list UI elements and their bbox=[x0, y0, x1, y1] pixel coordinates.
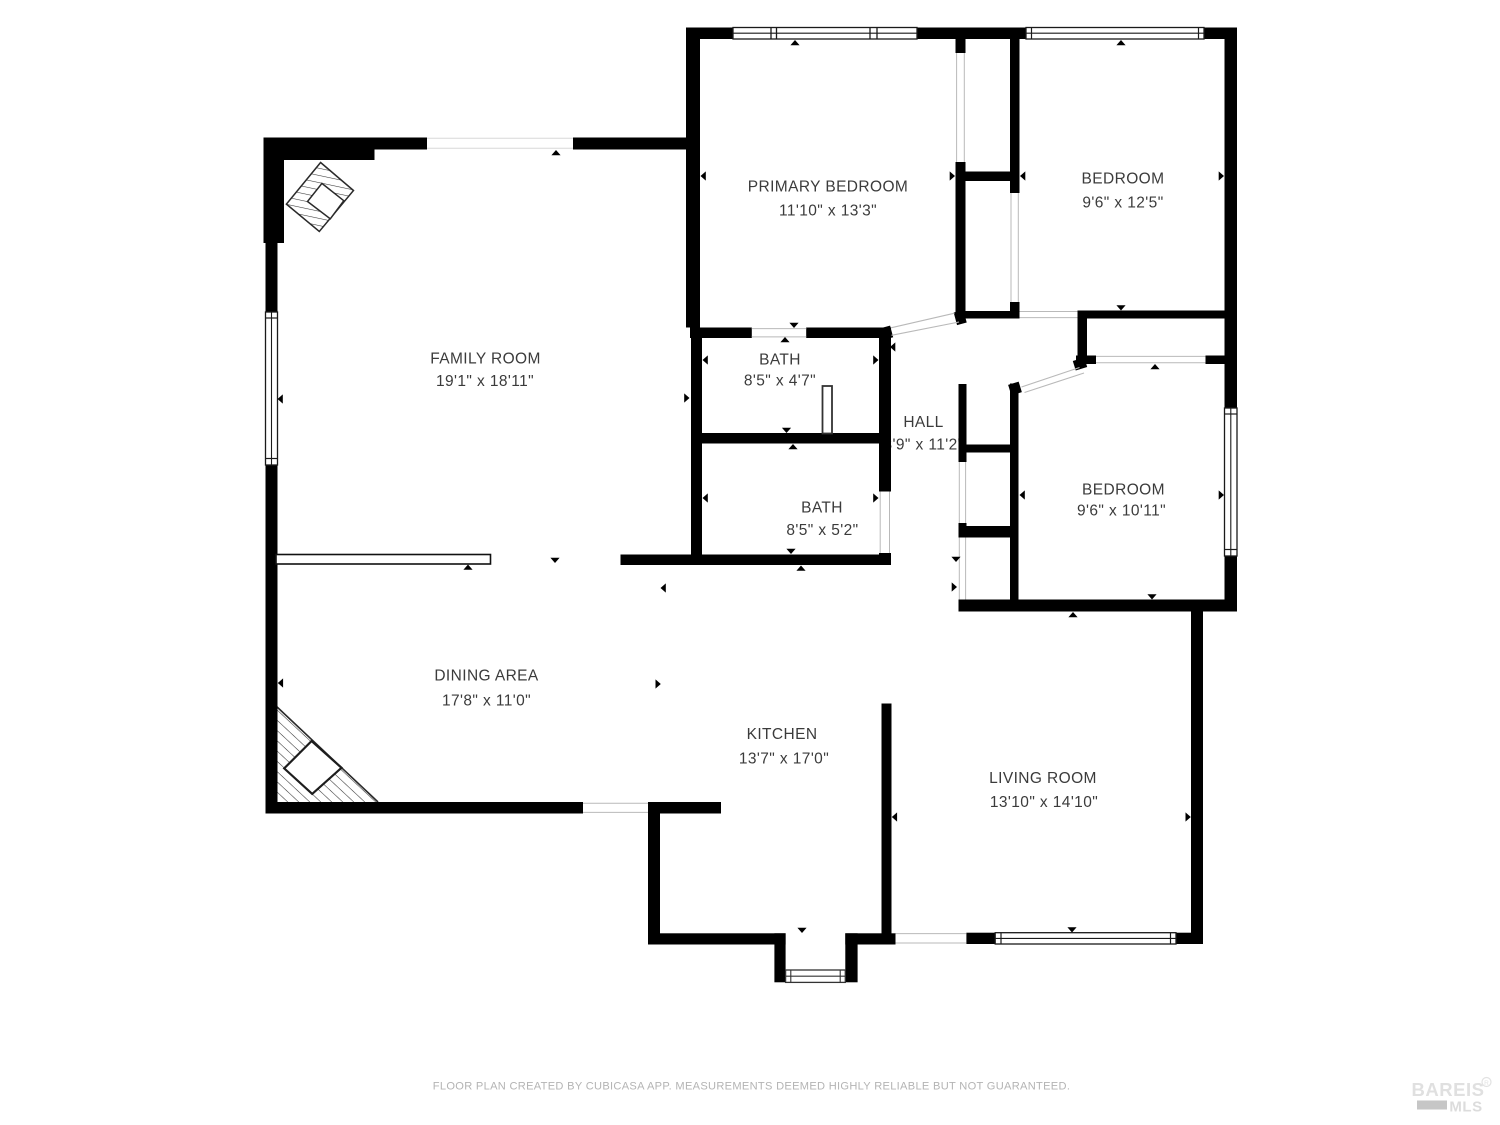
svg-text:BAREIS: BAREIS bbox=[1412, 1079, 1485, 1100]
svg-text:17'8" x 11'0": 17'8" x 11'0" bbox=[442, 693, 531, 710]
svg-text:11'10" x 13'3": 11'10" x 13'3" bbox=[779, 203, 877, 220]
svg-text:KITCHEN: KITCHEN bbox=[747, 726, 818, 743]
svg-text:13'7" x 17'0": 13'7" x 17'0" bbox=[739, 751, 829, 768]
svg-text:BEDROOM: BEDROOM bbox=[1082, 171, 1165, 188]
svg-text:9'6" x 12'5": 9'6" x 12'5" bbox=[1082, 195, 1163, 212]
svg-text:MLS: MLS bbox=[1449, 1099, 1482, 1116]
svg-text:9'6" x 10'11": 9'6" x 10'11" bbox=[1077, 503, 1166, 520]
svg-text:LIVING ROOM: LIVING ROOM bbox=[989, 770, 1097, 787]
svg-text:FLOOR PLAN CREATED BY CUBICASA: FLOOR PLAN CREATED BY CUBICASA APP. MEAS… bbox=[433, 1081, 1070, 1093]
svg-text:R: R bbox=[1484, 1080, 1489, 1087]
svg-text:19'1" x 18'11": 19'1" x 18'11" bbox=[436, 373, 534, 390]
svg-text:HALL: HALL bbox=[903, 414, 943, 431]
svg-text:8'5" x 4'7": 8'5" x 4'7" bbox=[744, 373, 816, 390]
svg-text:13'10" x 14'10": 13'10" x 14'10" bbox=[990, 794, 1098, 811]
svg-text:BEDROOM: BEDROOM bbox=[1082, 482, 1165, 499]
svg-text:PRIMARY BEDROOM: PRIMARY BEDROOM bbox=[748, 179, 908, 196]
svg-text:3'9" x 11'2": 3'9" x 11'2" bbox=[883, 437, 963, 454]
svg-text:BATH: BATH bbox=[801, 500, 843, 517]
svg-text:DINING AREA: DINING AREA bbox=[434, 668, 539, 685]
svg-text:BATH: BATH bbox=[759, 352, 801, 369]
svg-text:FAMILY ROOM: FAMILY ROOM bbox=[430, 351, 541, 368]
svg-text:8'5" x 5'2": 8'5" x 5'2" bbox=[786, 522, 858, 539]
